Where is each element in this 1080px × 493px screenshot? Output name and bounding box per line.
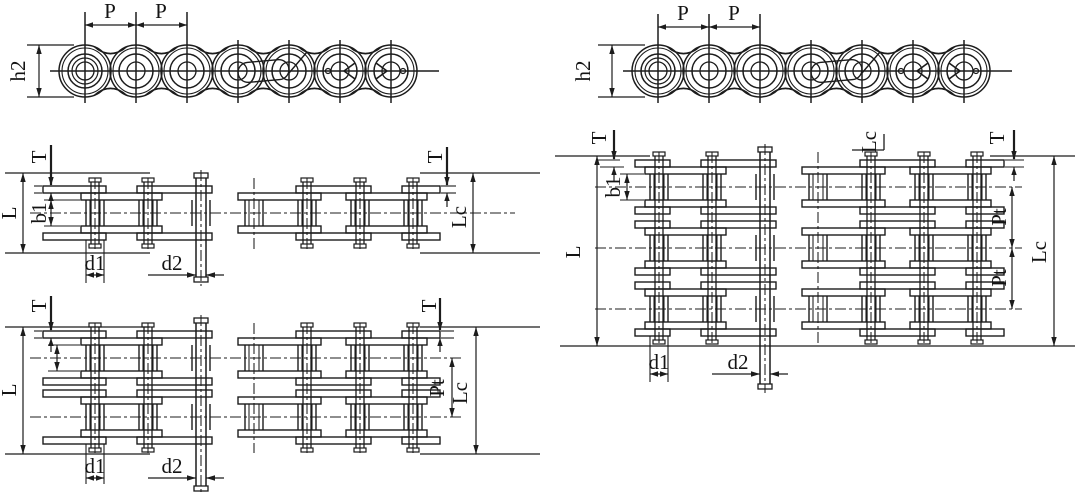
- dim-label-l: L: [561, 246, 585, 259]
- dim-label-d1: d1: [85, 454, 106, 478]
- chain-side-drawing: [598, 14, 1012, 103]
- dim-label-t-right: T: [985, 131, 1009, 144]
- dim-label-t-left: T: [27, 150, 51, 163]
- dim-label-pitch-right: P: [155, 0, 167, 23]
- dim-label-t-left: T: [27, 299, 51, 312]
- dim-label-t-right: T: [423, 150, 447, 163]
- dim-label-lc-top: Lc: [857, 131, 881, 153]
- plan-view-triplex-chain: T b1 L Lc T Pt Pt Lc d1 d2: [540, 120, 1080, 493]
- dim-label-t-left: T: [587, 131, 611, 144]
- dim-label-pitch-right: P: [728, 1, 740, 25]
- dim-label-pitch-left: P: [104, 0, 116, 23]
- dim-label-pt: Pt: [425, 379, 449, 397]
- dim-label-pt-upper: Pt: [987, 208, 1011, 226]
- dim-label-d1: d1: [649, 350, 670, 374]
- dim-label-l: L: [0, 207, 21, 220]
- dim-label-t-right: T: [417, 299, 441, 312]
- dim-label-lc: Lc: [448, 382, 472, 404]
- dim-label-lc: Lc: [1027, 241, 1051, 263]
- dim-label-h2: h2: [6, 61, 30, 82]
- dim-label-b1: b1: [27, 203, 51, 224]
- dim-label-d1: d1: [85, 251, 106, 275]
- dim-label-pitch-left: P: [677, 1, 689, 25]
- dim-label-b1: b1: [601, 177, 625, 198]
- roller-chain-dimension-diagrams: P P h2 T L b1 d1 d2 T Lc T L d1 d2 T Pt …: [0, 0, 1080, 493]
- chain-plan-drawing: [555, 130, 1075, 393]
- dim-label-l: L: [0, 384, 21, 397]
- dim-label-h2: h2: [571, 61, 595, 82]
- dim-label-lc: Lc: [447, 206, 471, 228]
- dim-label-d2: d2: [162, 251, 183, 275]
- plan-view-duplex-chain: T L d1 d2 T Pt Lc: [0, 290, 540, 493]
- dim-label-d2: d2: [162, 454, 183, 478]
- side-view-chain-left: P P h2: [0, 0, 540, 120]
- plan-view-simplex-chain: T L b1 d1 d2 T Lc: [0, 125, 540, 300]
- chain-side-drawing: [27, 12, 439, 103]
- side-view-chain-right: P P h2: [540, 0, 1080, 120]
- dim-label-d2: d2: [728, 350, 749, 374]
- dim-label-pt-lower: Pt: [987, 269, 1011, 287]
